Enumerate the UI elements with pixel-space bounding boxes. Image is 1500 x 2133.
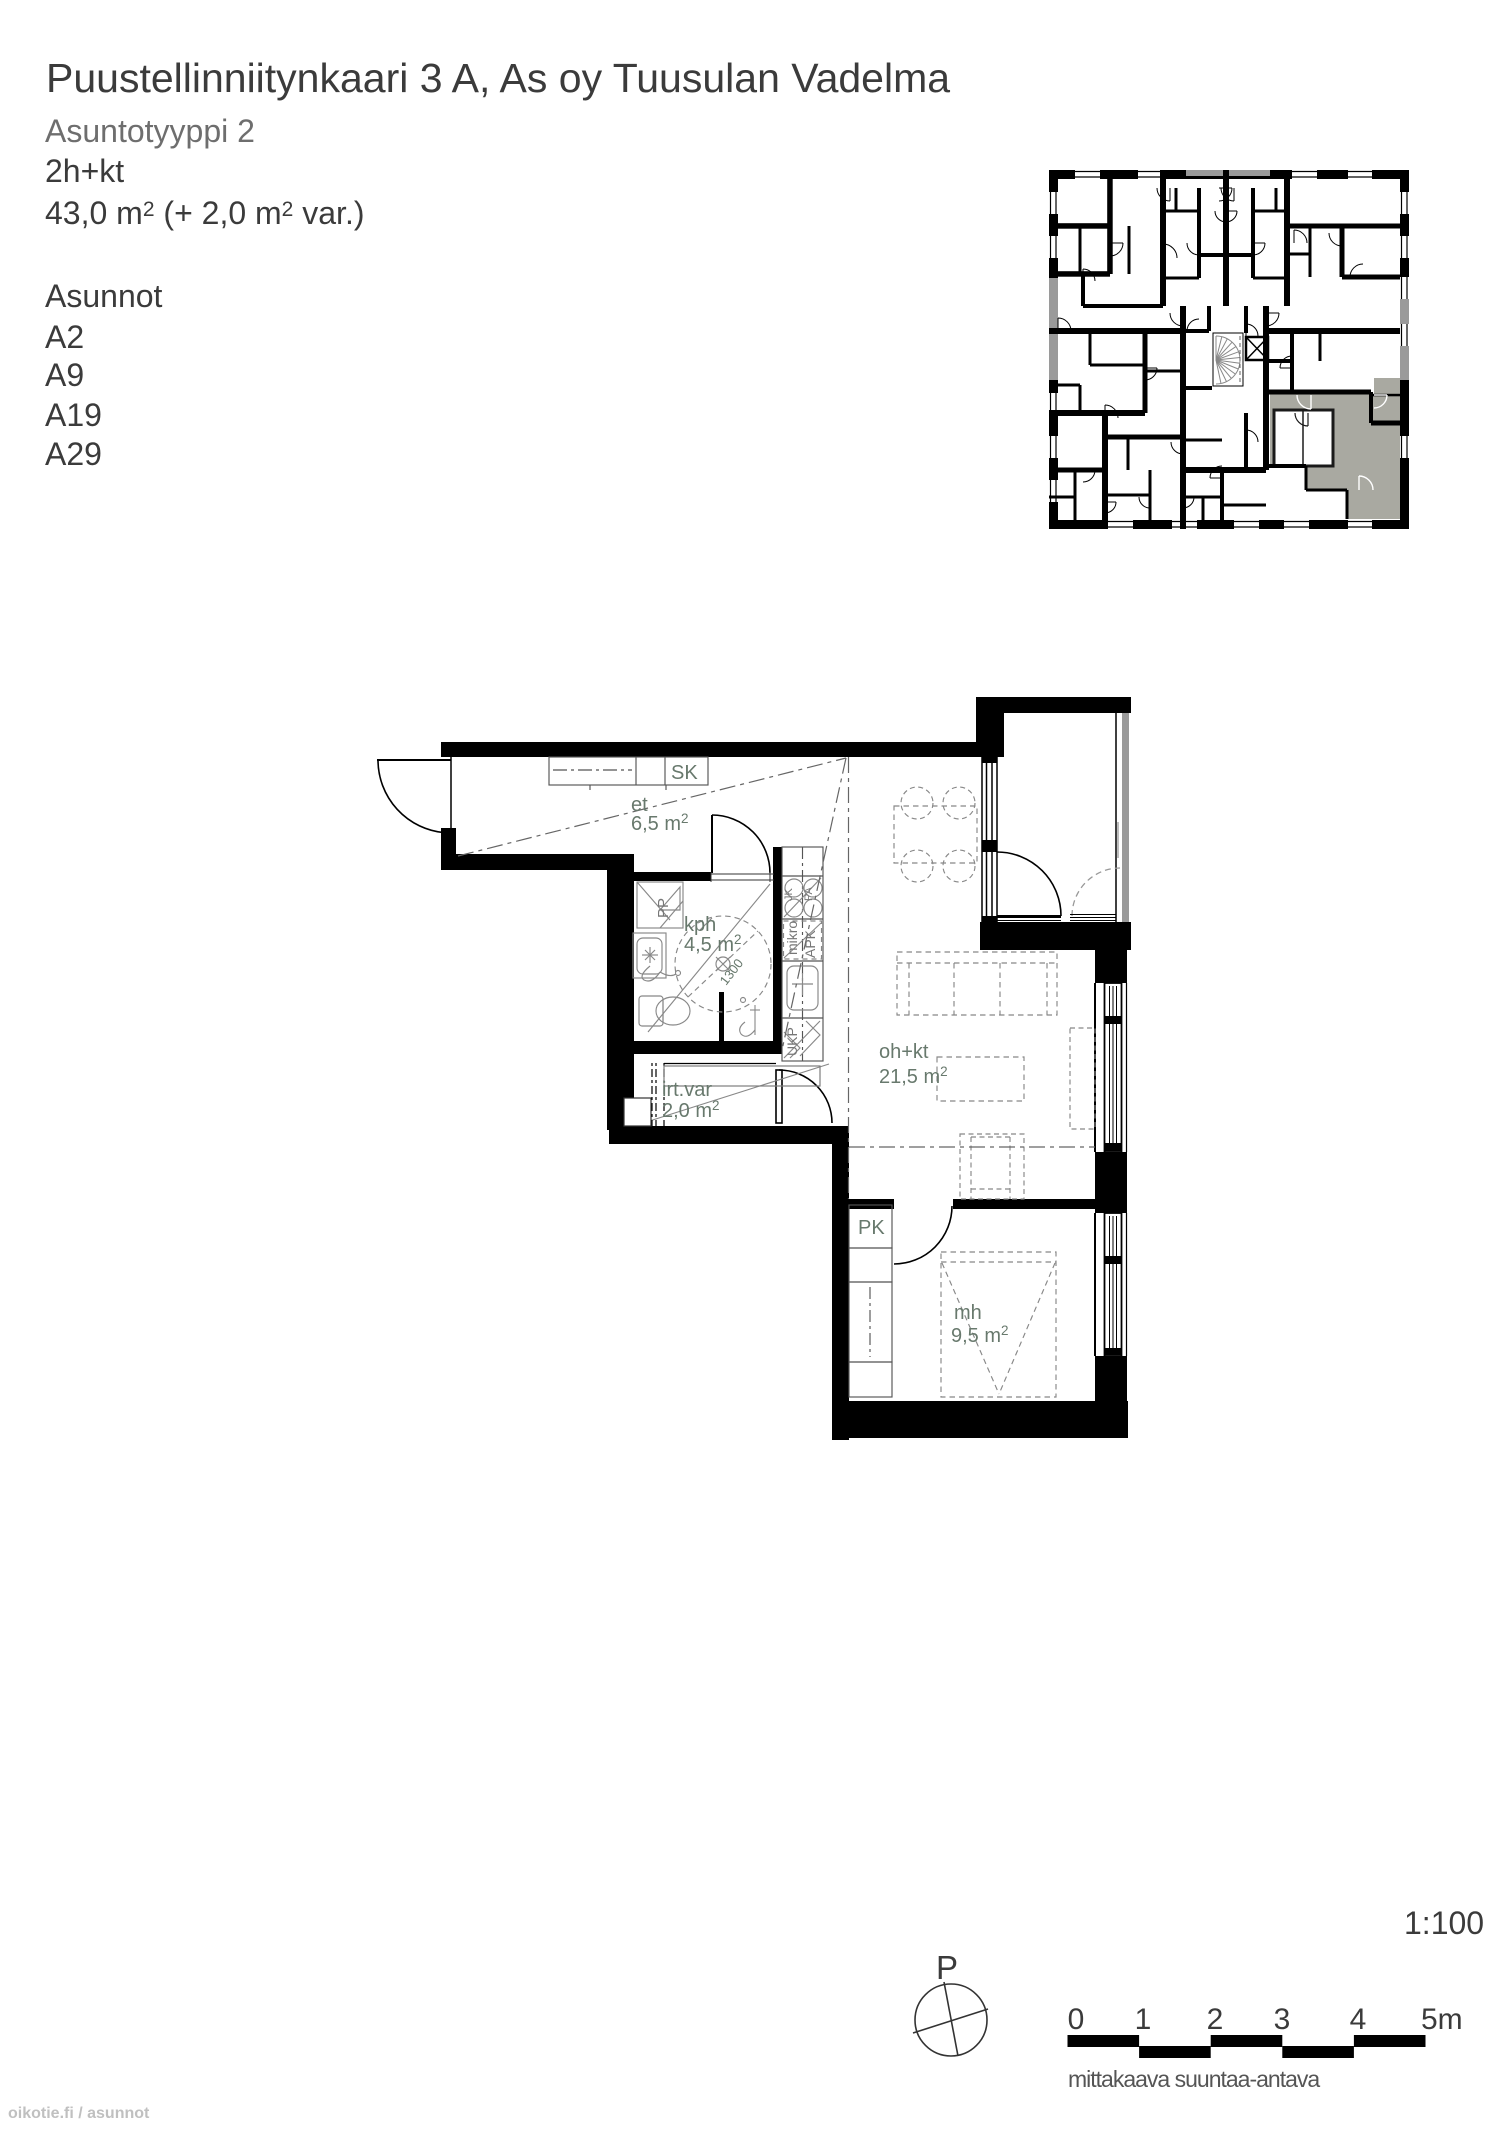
- svg-text:PP: PP: [655, 898, 672, 918]
- svg-text:2,0 m2: 2,0 m2: [662, 1098, 720, 1122]
- svg-text:6,5 m2: 6,5 m2: [631, 811, 689, 835]
- svg-text:kph: kph: [684, 914, 716, 936]
- svg-text:21,5 m2: 21,5 m2: [879, 1064, 948, 1088]
- svg-text:4: 4: [1350, 2003, 1367, 2036]
- svg-text:9,5 m2: 9,5 m2: [951, 1323, 1009, 1347]
- svg-text:1300: 1300: [717, 956, 747, 988]
- svg-text:JK: JK: [783, 888, 795, 902]
- svg-text:APK: APK: [802, 929, 818, 958]
- svg-text:PK: PK: [858, 1217, 885, 1239]
- svg-text:PA: PA: [803, 886, 815, 901]
- svg-text:2: 2: [1207, 2003, 1224, 2036]
- svg-text:5m: 5m: [1421, 2003, 1463, 2036]
- svg-text:P: P: [936, 1949, 958, 1986]
- svg-text:mh: mh: [954, 1302, 982, 1324]
- svg-text:mikro: mikro: [784, 921, 800, 955]
- svg-text:3: 3: [1274, 2003, 1291, 2036]
- svg-text:SK: SK: [671, 762, 698, 784]
- svg-text:1: 1: [1135, 2003, 1152, 2036]
- svg-text:UKP: UKP: [784, 1027, 800, 1056]
- svg-text:irt.var: irt.var: [662, 1079, 712, 1101]
- svg-text:oh+kt: oh+kt: [879, 1041, 929, 1063]
- svg-text:4,5 m2: 4,5 m2: [684, 932, 742, 956]
- svg-text:0: 0: [1068, 2003, 1085, 2036]
